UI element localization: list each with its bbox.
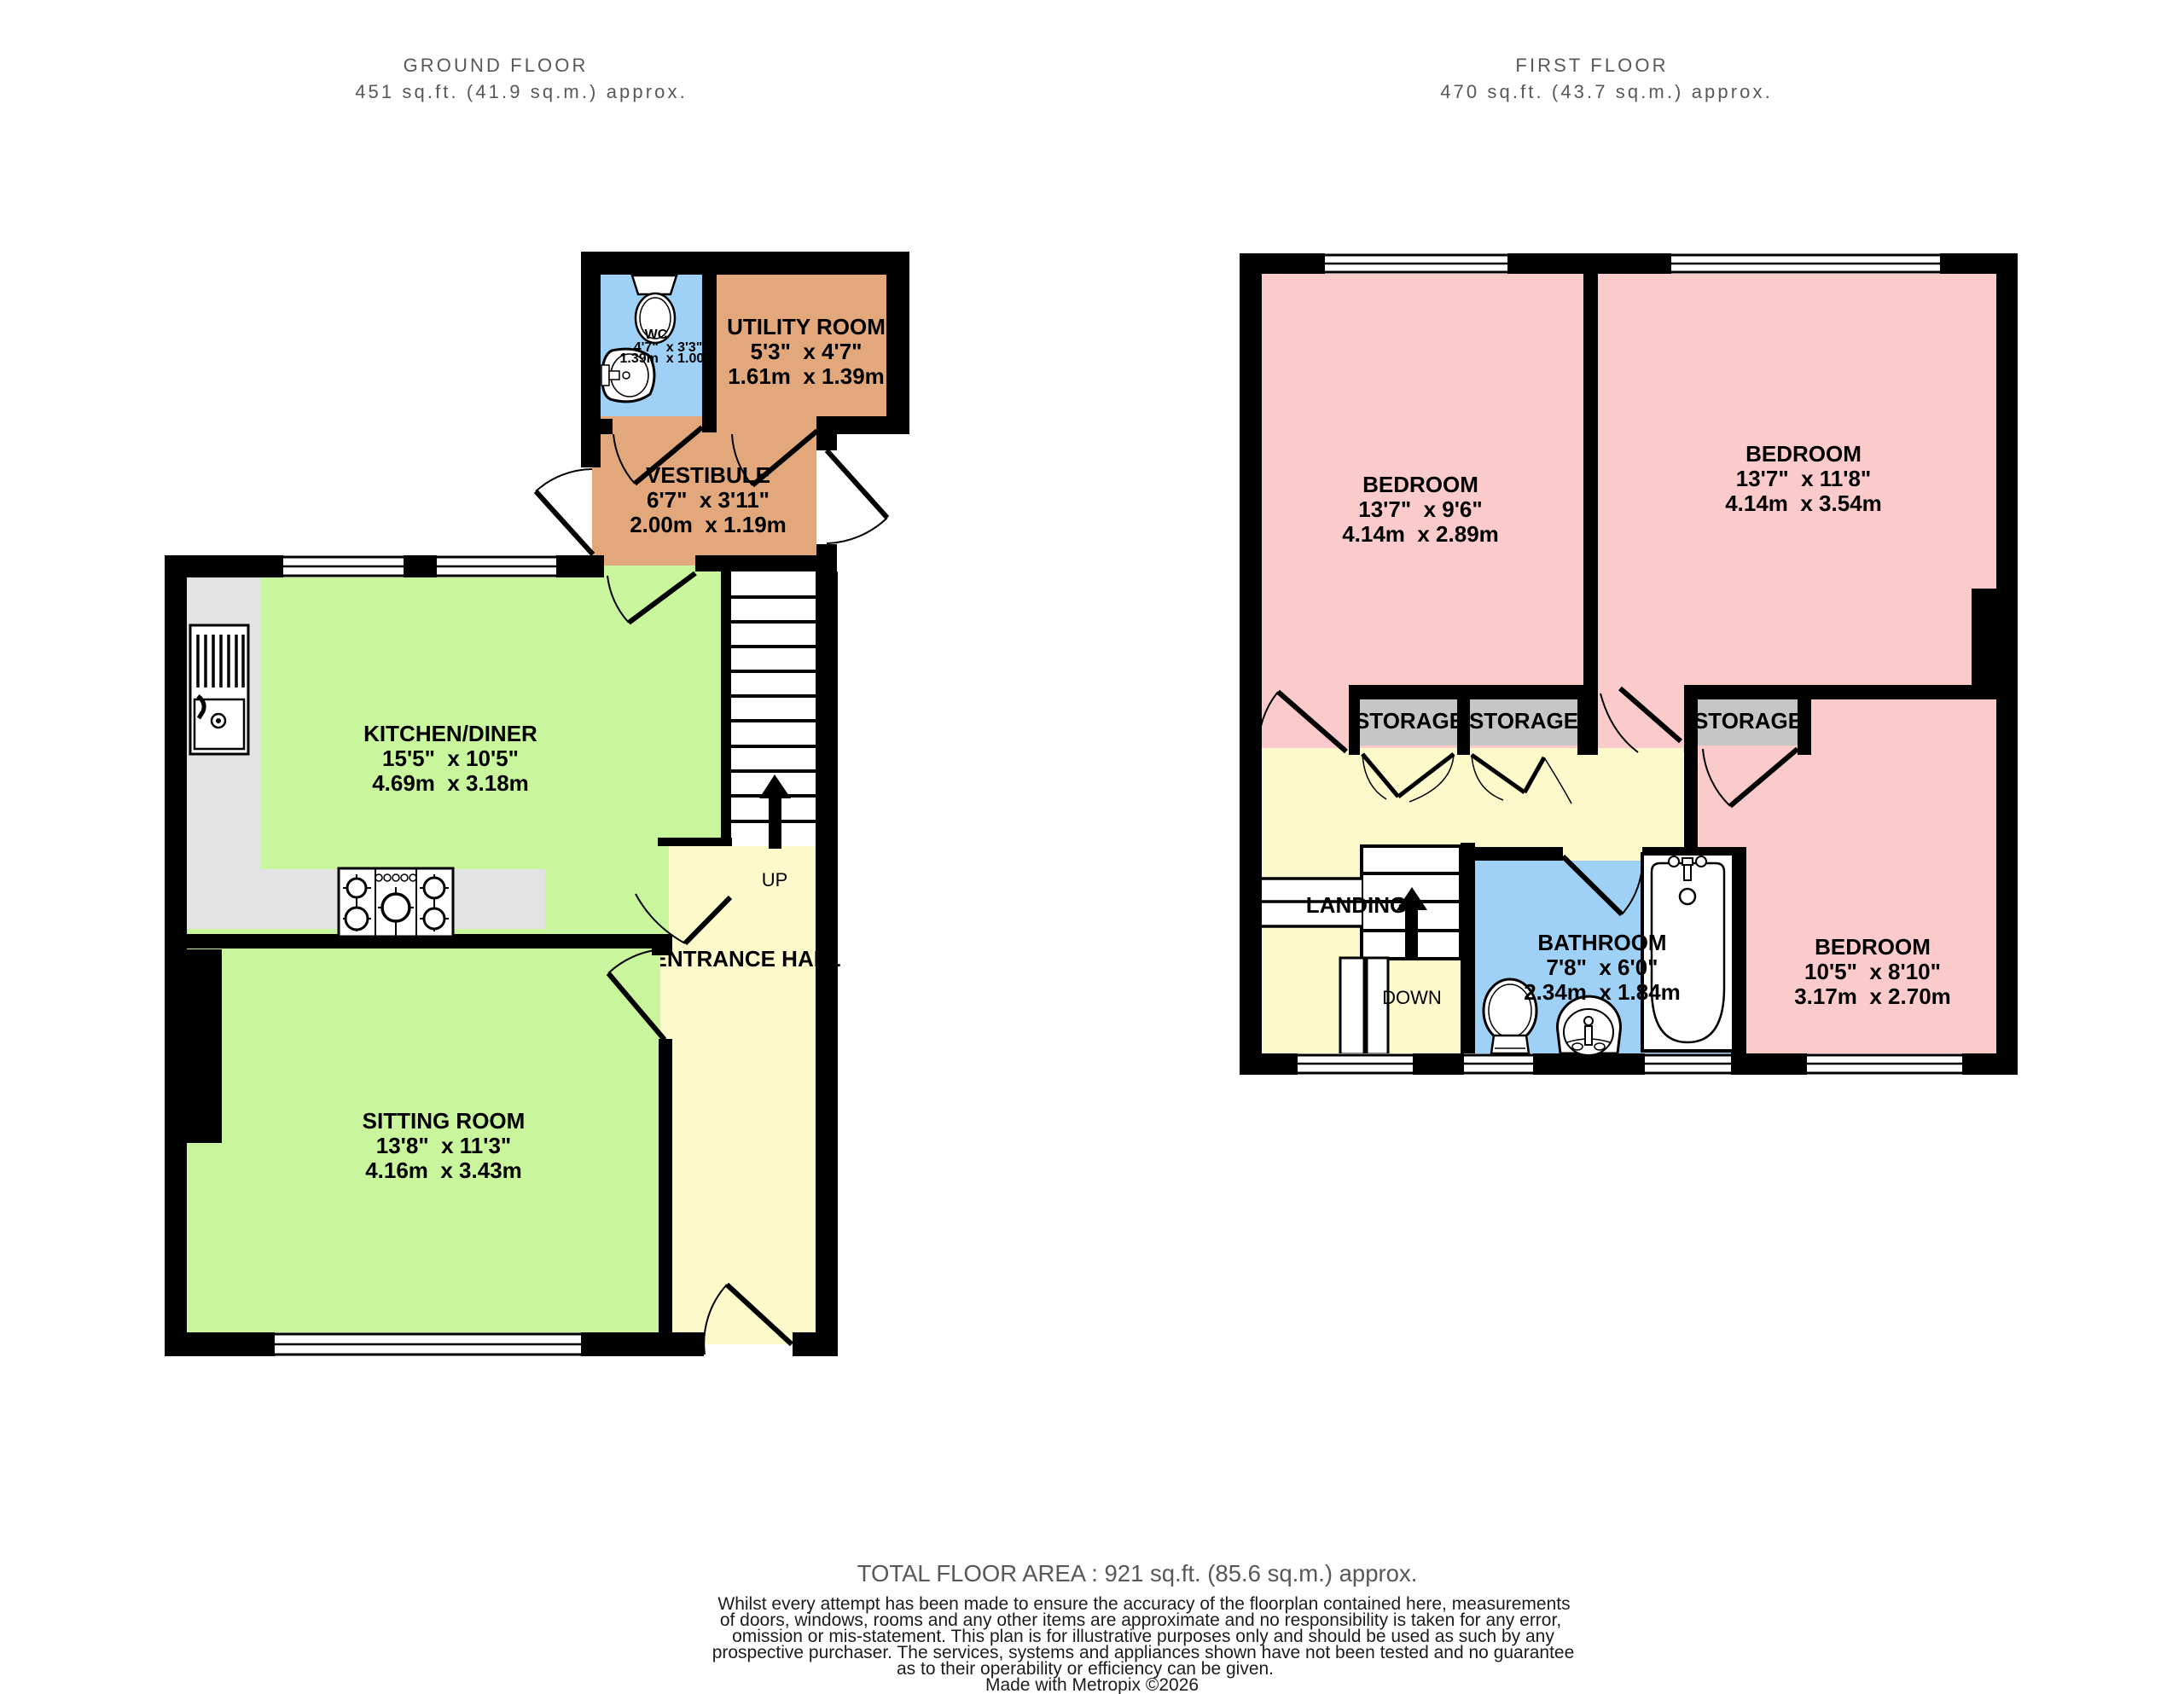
- svg-text:4.69m x 3.18m: 4.69m x 3.18m: [372, 770, 529, 796]
- svg-text:DOWN: DOWN: [1382, 987, 1442, 1008]
- svg-text:STORAGE: STORAGE: [1693, 708, 1803, 734]
- svg-text:BEDROOM: BEDROOM: [1362, 472, 1478, 497]
- svg-text:STORAGE: STORAGE: [1355, 708, 1464, 734]
- svg-text:SITTING ROOM: SITTING ROOM: [363, 1108, 526, 1134]
- svg-text:VESTIBULE: VESTIBULE: [646, 462, 770, 488]
- svg-text:13'7" x 11'8": 13'7" x 11'8": [1736, 466, 1871, 491]
- svg-text:13'8" x 11'3": 13'8" x 11'3": [376, 1133, 511, 1158]
- svg-text:4.14m x 3.54m: 4.14m x 3.54m: [1725, 490, 1882, 516]
- svg-text:451 sq.ft. (41.9 sq.m.) approx: 451 sq.ft. (41.9 sq.m.) approx.: [355, 81, 688, 102]
- svg-text:10'5" x 8'10": 10'5" x 8'10": [1804, 959, 1941, 984]
- svg-text:BATHROOM: BATHROOM: [1537, 930, 1666, 955]
- svg-text:KITCHEN/DINER: KITCHEN/DINER: [363, 721, 537, 746]
- svg-text:4.14m x 2.89m: 4.14m x 2.89m: [1342, 521, 1499, 547]
- svg-text:STORAGE: STORAGE: [1469, 708, 1578, 734]
- svg-text:FIRST FLOOR: FIRST FLOOR: [1515, 55, 1668, 76]
- svg-text:1.39m x 1.00m: 1.39m x 1.00m: [620, 351, 717, 366]
- svg-text:Made with Metropix ©2026: Made with Metropix ©2026: [985, 1675, 1199, 1694]
- svg-text:2.00m x 1.19m: 2.00m x 1.19m: [630, 512, 787, 537]
- svg-text:15'5" x 10'5": 15'5" x 10'5": [382, 745, 519, 771]
- svg-text:5'3" x 4'7": 5'3" x 4'7": [751, 339, 863, 364]
- svg-text:3.17m x 2.70m: 3.17m x 2.70m: [1794, 983, 1951, 1009]
- svg-text:ENTRANCE HALL: ENTRANCE HALL: [653, 946, 841, 972]
- svg-text:4.16m x 3.43m: 4.16m x 3.43m: [365, 1157, 522, 1183]
- svg-text:UP: UP: [762, 869, 788, 891]
- svg-text:13'7" x 9'6": 13'7" x 9'6": [1358, 496, 1482, 522]
- svg-text:BEDROOM: BEDROOM: [1745, 441, 1862, 467]
- svg-text:2.34m x 1.84m: 2.34m x 1.84m: [1524, 979, 1681, 1005]
- svg-text:UTILITY ROOM: UTILITY ROOM: [727, 314, 886, 339]
- svg-text:TOTAL FLOOR AREA : 921 sq.ft.: TOTAL FLOOR AREA : 921 sq.ft. (85.6 sq.m…: [857, 1560, 1418, 1587]
- svg-text:7'8" x 6'0": 7'8" x 6'0": [1547, 954, 1658, 980]
- svg-text:470 sq.ft. (43.7 sq.m.) approx: 470 sq.ft. (43.7 sq.m.) approx.: [1440, 81, 1773, 102]
- svg-text:6'7" x 3'11": 6'7" x 3'11": [647, 487, 770, 513]
- svg-text:LANDING: LANDING: [1306, 892, 1407, 918]
- svg-text:GROUND FLOOR: GROUND FLOOR: [404, 55, 589, 76]
- svg-text:BEDROOM: BEDROOM: [1815, 934, 1931, 960]
- svg-text:1.61m x 1.39m: 1.61m x 1.39m: [728, 363, 885, 389]
